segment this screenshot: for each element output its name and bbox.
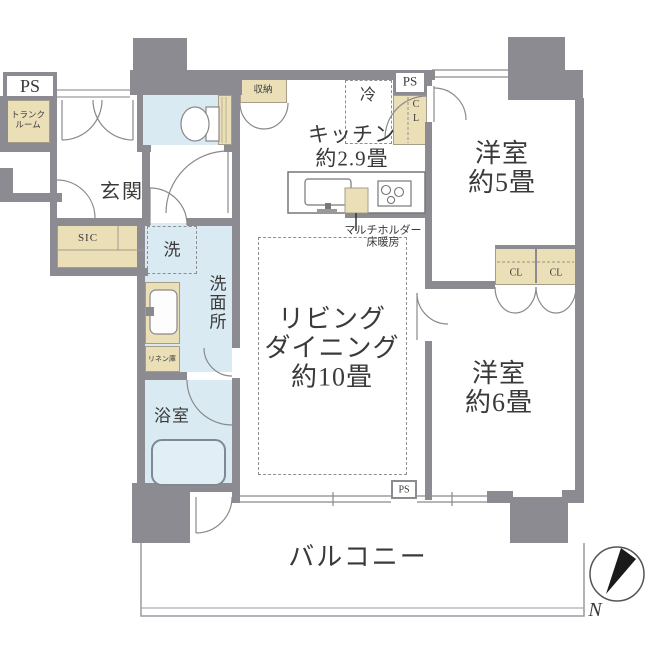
wall [345, 210, 432, 218]
label-cl-c: C [413, 98, 420, 112]
label-cl-l: L [413, 112, 420, 126]
vanity-cabinet [145, 282, 180, 344]
wall [562, 490, 584, 503]
label-multi-line2: 床暖房 [345, 237, 422, 249]
wall [232, 218, 240, 348]
kitchen-closet [393, 95, 427, 145]
wall [575, 98, 584, 497]
pillar-block [510, 497, 568, 543]
bedroom6-door [417, 293, 448, 324]
label-cl-left: CL [510, 267, 523, 278]
wall [50, 218, 150, 226]
kitchen-counter [288, 172, 425, 231]
kitchen-sink [305, 179, 351, 205]
wall [425, 122, 432, 282]
storage-fold-door [240, 103, 288, 129]
label-ps-top: PS [20, 76, 40, 96]
wall [425, 341, 432, 500]
toilet-room [143, 95, 218, 145]
label-ps-bottom: PS [398, 484, 409, 495]
label-bedroom5-line1: 洋室 [468, 139, 536, 168]
label-bedroom6-line1: 洋室 [465, 359, 533, 388]
wall [232, 92, 240, 223]
label-washer: 洗 [164, 240, 181, 259]
toilet-shelf [218, 95, 232, 145]
label-living-line2: ダイニング [264, 333, 399, 362]
pillar-block [132, 490, 190, 543]
wall [130, 70, 242, 95]
faucet-icon [325, 203, 331, 212]
label-kitchen-line1: キッチン [308, 123, 396, 147]
label-bedroom6-line2: 約6畳 [465, 388, 533, 417]
label-trunk-room: トランク ルーム [11, 110, 45, 129]
label-balcony: バルコニー [288, 542, 427, 571]
label-north: N [588, 599, 601, 621]
wall [187, 218, 240, 226]
wall [50, 77, 57, 272]
entry-threshold [57, 90, 130, 97]
label-cl-kitchen: C L [413, 98, 420, 126]
shoe-closet [57, 225, 145, 268]
bedroom5-door [434, 88, 466, 120]
bathroom [145, 380, 232, 483]
wall [0, 143, 57, 152]
wall [0, 193, 62, 202]
label-living-line1: リビング [264, 304, 399, 333]
label-bedroom5-line2: 約5畳 [468, 168, 536, 197]
label-genkan: 玄関 [100, 181, 144, 203]
wall [137, 145, 151, 152]
compass [590, 547, 644, 601]
label-living-line3: 約10畳 [264, 363, 399, 392]
wall [137, 218, 145, 490]
label-trunk-line2: ルーム [11, 120, 45, 130]
label-washroom: 洗面所 [206, 275, 225, 332]
label-sic: SIC [78, 232, 98, 244]
compass-needle [606, 548, 636, 594]
label-multi-line1: マルチホルダー [345, 225, 422, 237]
wall [137, 88, 143, 148]
wall [565, 70, 583, 100]
bedroom-closets [495, 245, 576, 285]
wall [133, 38, 187, 72]
label-cl-right: CL [550, 267, 563, 278]
wall [508, 37, 565, 100]
label-linen: リネン庫 [148, 356, 176, 364]
label-kitchen: キッチン 約2.9畳 [308, 123, 396, 170]
wall [0, 96, 8, 150]
floor-plan: PS トランク ルーム 玄関 SIC 洗 洗面所 リネン庫 浴室 収納 冷 PS… [0, 0, 659, 662]
label-bedroom6: 洋室 約6畳 [465, 359, 533, 417]
balcony-partition-door [196, 497, 232, 533]
label-ps-kitchen: PS [403, 75, 417, 90]
wall [145, 372, 187, 380]
stove [378, 181, 411, 206]
closet-fold-door [495, 287, 536, 313]
label-multi-holder: マルチホルダー 床暖房 [345, 225, 422, 250]
wall [425, 281, 495, 289]
wall [224, 145, 240, 152]
label-kitchen-line2: 約2.9畳 [308, 147, 396, 171]
closet-fold-door [536, 287, 576, 313]
label-storage: 収納 [253, 86, 272, 97]
wall [50, 268, 148, 276]
label-fridge: 冷 [360, 87, 376, 105]
label-living-dining: リビング ダイニング 約10畳 [264, 304, 399, 391]
label-bedroom5: 洋室 約5畳 [468, 139, 536, 197]
label-bath: 浴室 [154, 406, 190, 425]
